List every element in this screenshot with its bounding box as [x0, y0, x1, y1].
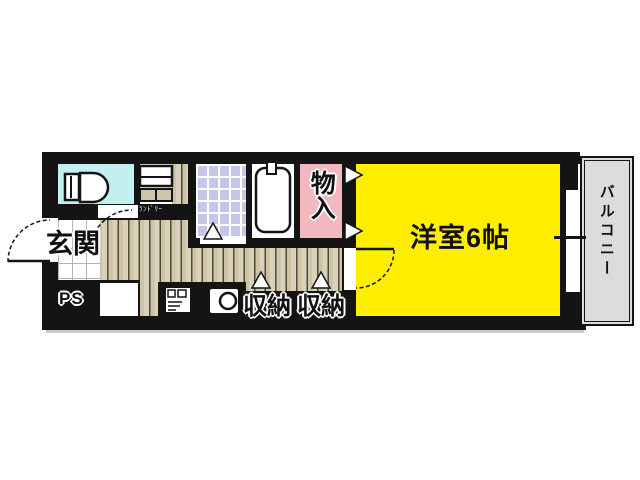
shelf-unit-icon: [140, 166, 172, 186]
laundry-label: ﾗﾝﾄﾞﾘｰ: [139, 206, 163, 213]
plan-shadow: [46, 330, 584, 333]
bathroom: [196, 164, 246, 238]
storage-label-left: 収納: [243, 294, 291, 319]
wall-bath-divider-1: [246, 152, 252, 248]
entrance-label: 玄関: [46, 230, 100, 258]
storage-label-right: 収納: [297, 294, 345, 319]
closet-label: 物入: [308, 170, 334, 220]
flooring-strip: [172, 164, 188, 204]
balcony-access-line: [554, 236, 586, 239]
pipe-space-label: PS: [59, 290, 84, 308]
pipe-space-box: [100, 283, 138, 316]
bathtub-room: [252, 164, 294, 238]
bathroom-threshold: [200, 238, 246, 244]
kitchen-sink: [208, 287, 240, 315]
wall-bath-divider-2: [294, 152, 300, 248]
balcony-window-opening: [566, 190, 578, 292]
main-room-label: 洋室6帖: [410, 224, 510, 252]
wall-toilet-right: [134, 152, 140, 206]
balcony-label: バルコニー: [598, 184, 614, 279]
shelf-base-icon: [140, 189, 172, 201]
toilet-room: [58, 164, 134, 204]
wall-left-upper: [42, 152, 58, 218]
kitchen-stove: [164, 286, 192, 314]
wall-shelf-right: [188, 152, 196, 248]
mainroom-door-opening: [344, 248, 356, 290]
toilet-door-opening: [98, 205, 138, 218]
wall-top: [42, 152, 580, 164]
floor-plan: 玄関 PS ﾗﾝﾄﾞﾘｰ 物入 洋室6帖 収納 収納 バルコニー: [0, 0, 640, 480]
